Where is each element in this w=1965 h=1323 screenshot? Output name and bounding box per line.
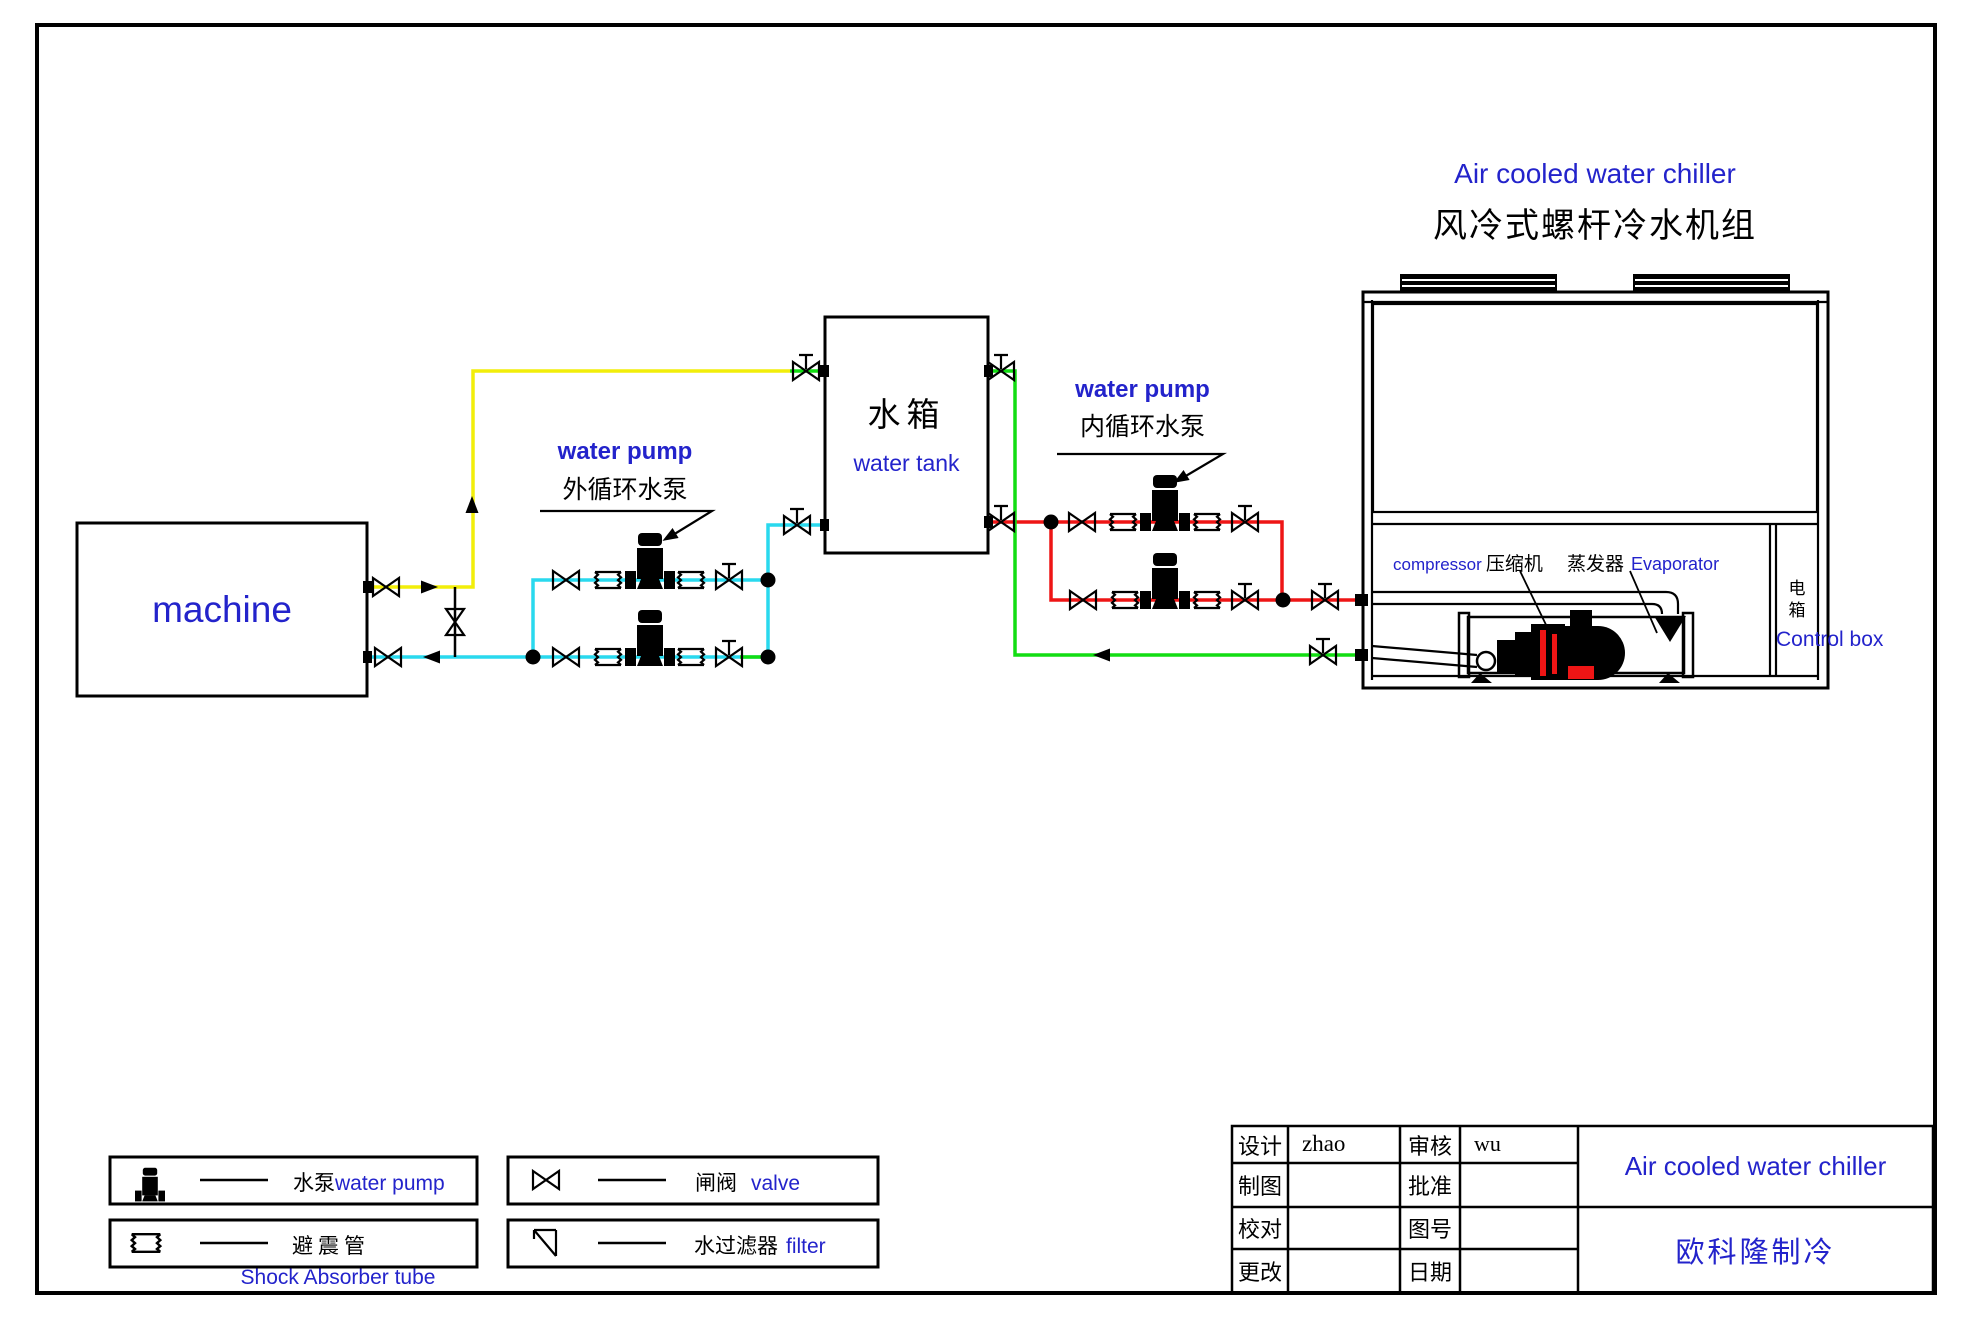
legend-shock-icon: [132, 1234, 161, 1252]
chiller-port-red: [1355, 594, 1368, 606]
fan-cap-left: [1400, 274, 1557, 293]
legend-valve-label: 闸阀valve: [695, 1167, 800, 1197]
legend-pump-label: 水泵water pump: [293, 1167, 445, 1197]
tb-proof-label: 校对: [1232, 1207, 1288, 1249]
tb-design-label: 设计: [1232, 1126, 1288, 1163]
pump-external-label-zh: 外循环水泵: [535, 470, 715, 506]
evaporator-label-zh: 蒸发器: [1567, 554, 1624, 575]
tb-approve-label: 批准: [1400, 1163, 1460, 1207]
chiller-title-en: Air cooled water chiller: [1390, 158, 1800, 190]
machine-label: machine: [77, 523, 367, 696]
condenser-coil-hatch: [1373, 304, 1817, 512]
legend-filter-label: 水过滤器filter: [694, 1230, 826, 1260]
flow-arrow-green-left: [1093, 649, 1110, 662]
water-tank-label-en: water tank: [825, 450, 988, 477]
tb-product-title: Air cooled water chiller: [1578, 1126, 1933, 1207]
tank-port-left-bottom: [820, 519, 829, 531]
pump-external-2: [625, 610, 675, 666]
pump-internal-1: [1140, 475, 1190, 531]
legend-shock-label-zh: 避震管: [292, 1230, 370, 1260]
pump-external-label-en: water pump: [535, 438, 715, 466]
shock-absorber-icons: [595, 514, 1220, 665]
compressor-label: compressor压缩机: [1393, 549, 1543, 576]
chiller-title-zh: 风冷式螺杆冷水机组: [1385, 198, 1805, 247]
pipe-cyan-return: [367, 525, 825, 657]
flow-arrow-left: [423, 651, 440, 664]
tb-review-label: 审核: [1400, 1126, 1460, 1163]
drawing-page: Air cooled water chiller 风冷式螺杆冷水机组 machi…: [0, 0, 1965, 1323]
chiller-unit: [1355, 274, 1828, 688]
tank-port-left-top: [820, 365, 829, 377]
legend-valve-en: valve: [751, 1172, 800, 1195]
tb-company-name: 欧科隆制冷: [1578, 1207, 1933, 1293]
water-tank-label-zh: 水箱: [825, 388, 988, 436]
legend-filter-icon: [534, 1230, 556, 1256]
legend-valve-zh: 闸阀: [695, 1172, 737, 1195]
compressor-assembly: [1497, 610, 1625, 680]
tb-review-value: wu: [1474, 1131, 1501, 1157]
legend-box-valve: [508, 1157, 878, 1204]
control-box-compartment: [1770, 524, 1776, 676]
fan-cap-right: [1633, 274, 1790, 293]
legend-filter-zh: 水过滤器: [694, 1235, 778, 1258]
pump-external-1: [625, 533, 675, 589]
legend-filter-en: filter: [786, 1235, 826, 1258]
tb-change-label: 更改: [1232, 1249, 1288, 1293]
pump-internal-label-en: water pump: [1050, 376, 1235, 404]
tb-date-label: 日期: [1400, 1249, 1460, 1293]
legend-pump-zh: 水泵: [293, 1172, 335, 1195]
flow-arrow-up: [466, 496, 479, 513]
evaporator-label: 蒸发器Evaporator: [1567, 549, 1719, 576]
tb-draft-label: 制图: [1232, 1163, 1288, 1207]
compressor-label-zh: 压缩机: [1486, 554, 1543, 575]
tb-drawing-no-label: 图号: [1400, 1207, 1460, 1249]
legend-pump-icon: [135, 1168, 165, 1202]
pump-internal-2: [1140, 553, 1190, 609]
compressor-label-en: compressor: [1393, 555, 1482, 574]
control-box-label-en: Control box: [1776, 628, 1883, 652]
legend-valve-icon: [533, 1171, 559, 1189]
chiller-port-green: [1355, 649, 1368, 661]
flow-arrow-right: [421, 581, 438, 594]
evaporator-label-en: Evaporator: [1631, 554, 1719, 574]
tb-design-value: zhao: [1302, 1131, 1345, 1157]
legend-shock-caption-en: Shock Absorber tube: [178, 1266, 498, 1290]
legend-pump-en: water pump: [335, 1172, 445, 1195]
pump-internal-label-zh: 内循环水泵: [1050, 407, 1235, 443]
control-box-label-zh: 电箱: [1786, 578, 1808, 622]
